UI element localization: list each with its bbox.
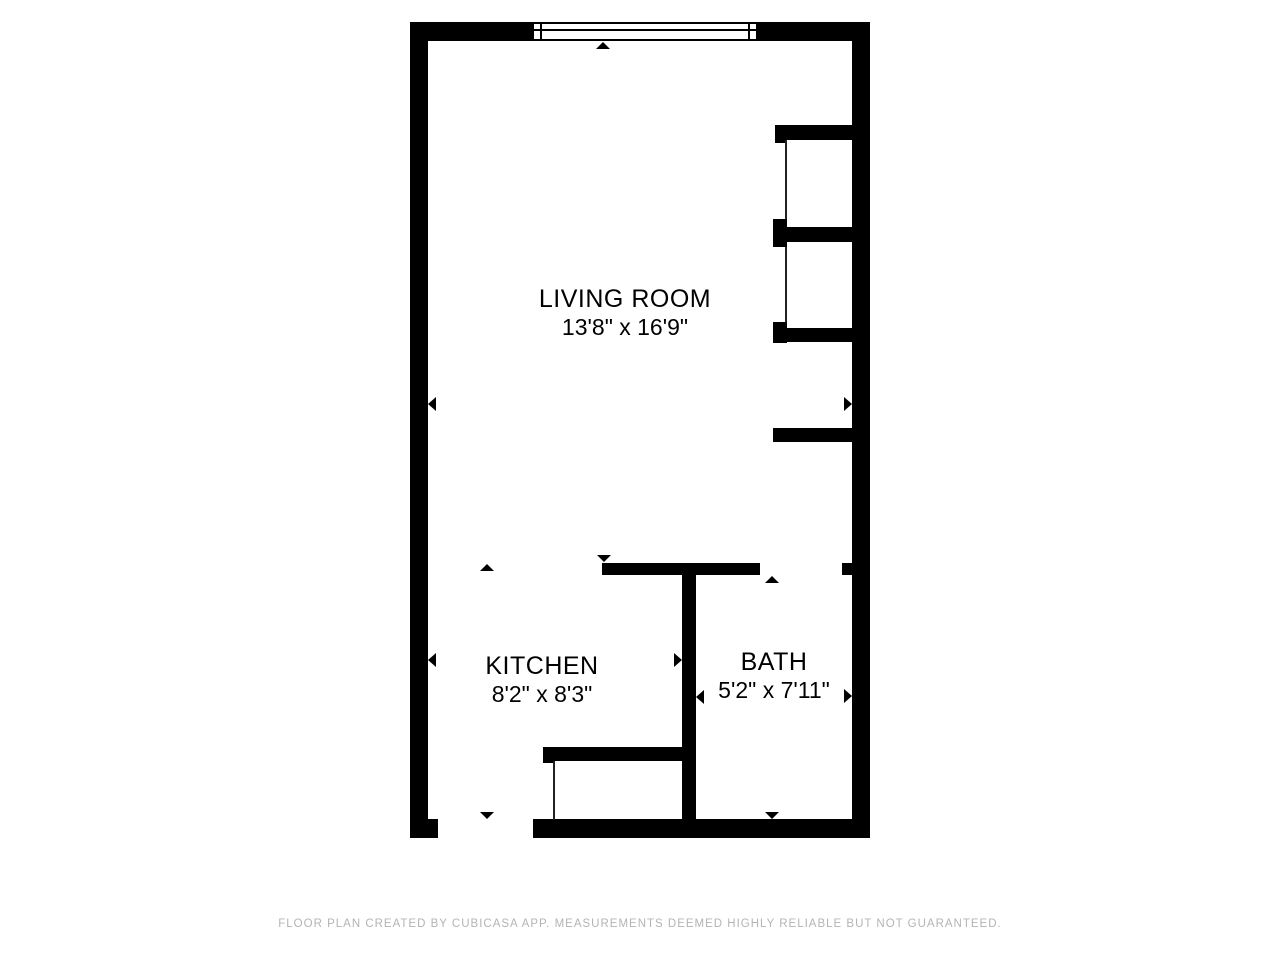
room-dimensions: 13'8" x 16'9"	[539, 313, 711, 341]
closet-partition-4-bar	[773, 428, 852, 442]
measure-arrow-down-icon	[765, 812, 779, 819]
room-name: KITCHEN	[485, 652, 598, 680]
room-label-kitchen: KITCHEN 8'2" x 8'3"	[485, 652, 598, 708]
kitchen-closet-front-line	[553, 761, 555, 820]
wall-right	[852, 22, 870, 838]
room-name: LIVING ROOM	[539, 285, 711, 313]
measure-arrow-right-icon	[674, 653, 682, 667]
room-dimensions: 5'2" x 7'11"	[718, 676, 830, 704]
wall-top-left-segment	[410, 22, 532, 41]
measure-arrow-right-icon	[844, 397, 852, 411]
wall-bath-door-stub	[842, 563, 852, 575]
wall-kitchen-bath-divider	[682, 563, 696, 820]
room-dimensions: 8'2" x 8'3"	[485, 680, 598, 708]
wall-bottom-main	[533, 819, 870, 838]
window-pane-line	[534, 29, 756, 31]
wall-bottom-left-stub	[410, 819, 438, 838]
window-jamb-right	[748, 24, 750, 39]
closet-1-front-line	[785, 140, 787, 220]
closet-partition-2-bar	[773, 227, 852, 242]
room-name: BATH	[718, 648, 830, 676]
wall-left	[410, 22, 428, 838]
measure-arrow-up-icon	[765, 576, 779, 583]
measure-arrow-up-icon	[596, 42, 610, 49]
measure-arrow-left-icon	[696, 690, 704, 704]
measure-arrow-up-icon	[480, 564, 494, 571]
kitchen-closet-bar	[543, 747, 685, 761]
room-label-living-room: LIVING ROOM 13'8" x 16'9"	[539, 285, 711, 341]
measure-arrow-down-icon	[597, 555, 611, 562]
floor-plan-canvas: LIVING ROOM 13'8" x 16'9" KITCHEN 8'2" x…	[0, 0, 1280, 960]
measure-arrow-left-icon	[428, 397, 436, 411]
window	[532, 22, 758, 41]
measure-arrow-right-icon	[844, 689, 852, 703]
measure-arrow-left-icon	[428, 653, 436, 667]
closet-2-front-line	[785, 247, 787, 322]
wall-living-kitchen-divider	[602, 563, 760, 575]
footer-credit: FLOOR PLAN CREATED BY CUBICASA APP. MEAS…	[0, 918, 1280, 930]
room-label-bath: BATH 5'2" x 7'11"	[718, 648, 830, 704]
closet-partition-3-bar	[773, 328, 852, 342]
measure-arrow-down-icon	[480, 812, 494, 819]
window-jamb-left	[540, 24, 542, 39]
